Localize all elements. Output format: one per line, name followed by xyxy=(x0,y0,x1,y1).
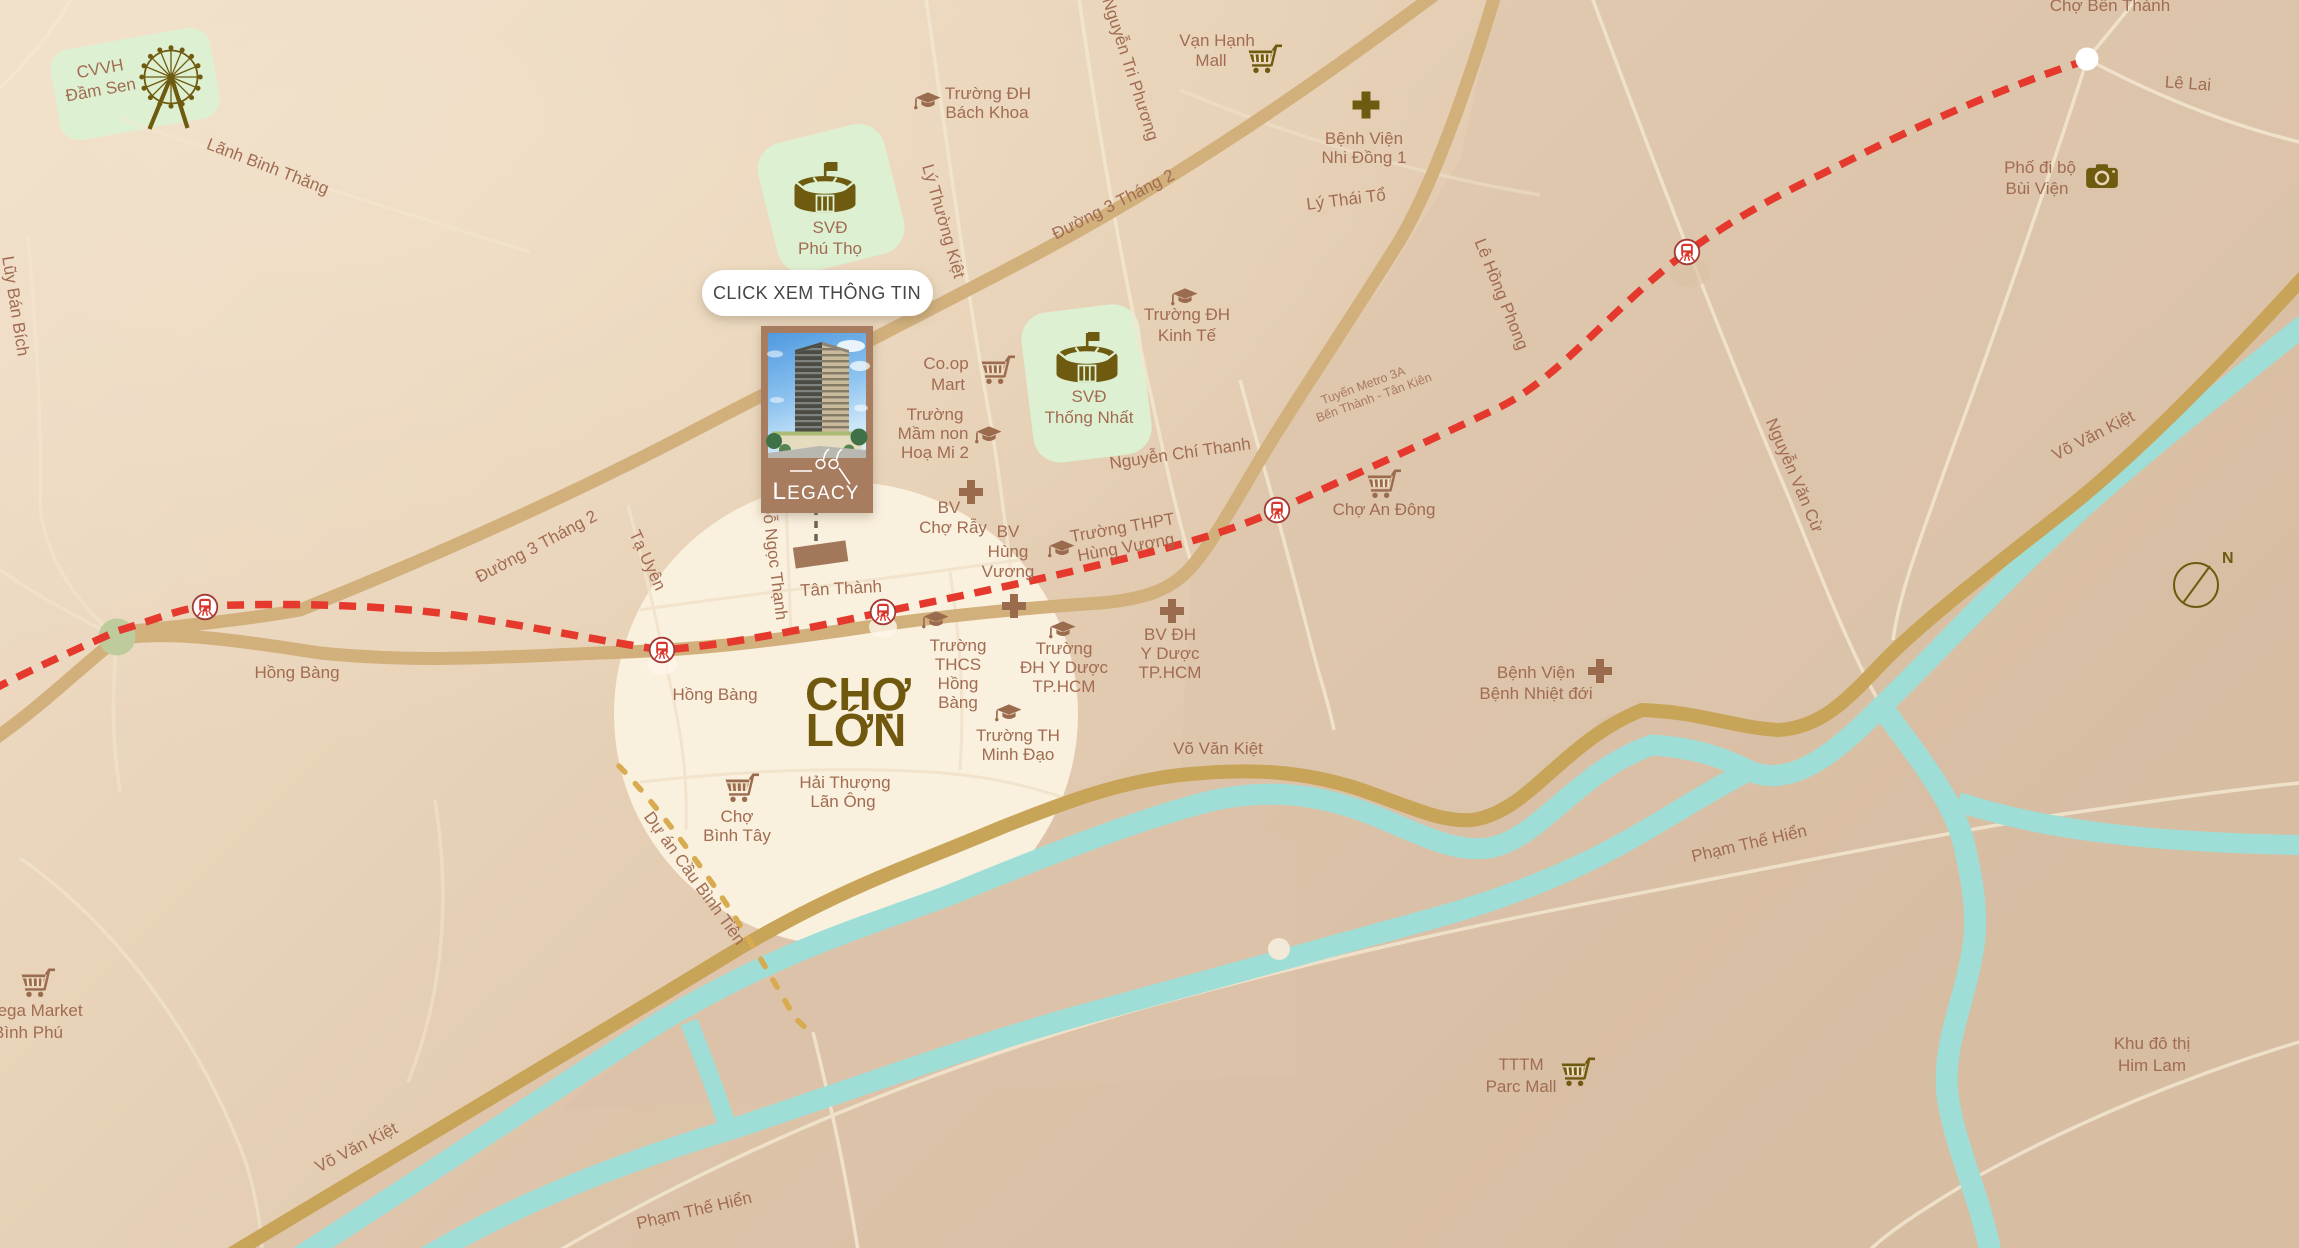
svg-text:Khu đô thị: Khu đô thị xyxy=(2114,1034,2191,1053)
svg-text:LỚN: LỚN xyxy=(806,704,907,756)
svg-text:Nhi Đồng 1: Nhi Đồng 1 xyxy=(1321,148,1406,167)
svg-text:LEGACY: LEGACY xyxy=(772,478,859,505)
svg-text:Chợ: Chợ xyxy=(721,807,754,826)
svg-text:Mầm non: Mầm non xyxy=(898,424,969,443)
svg-text:Kinh Tế: Kinh Tế xyxy=(1158,326,1217,345)
svg-text:BV ĐH: BV ĐH xyxy=(1144,625,1196,644)
svg-text:Trường: Trường xyxy=(930,636,987,655)
svg-text:BV: BV xyxy=(938,498,961,517)
svg-text:SVĐ: SVĐ xyxy=(813,218,848,237)
svg-text:Hồng Bàng: Hồng Bàng xyxy=(254,663,339,682)
svg-text:Hải Thượng: Hải Thượng xyxy=(799,773,890,792)
svg-text:Bình Tây: Bình Tây xyxy=(703,826,771,845)
svg-text:Bệnh Viện: Bệnh Viện xyxy=(1497,663,1575,682)
svg-text:Hồng Bàng: Hồng Bàng xyxy=(672,685,757,704)
svg-text:Him Lam: Him Lam xyxy=(2118,1056,2186,1075)
svg-text:Y Dược: Y Dược xyxy=(1140,644,1200,663)
svg-text:Trường: Trường xyxy=(1036,639,1093,658)
svg-text:Minh Đạo: Minh Đạo xyxy=(982,745,1055,764)
svg-text:Chợ An Đông: Chợ An Đông xyxy=(1333,500,1436,519)
svg-text:CLICK XEM THÔNG TIN: CLICK XEM THÔNG TIN xyxy=(713,282,921,303)
svg-text:Võ Văn Kiệt: Võ Văn Kiệt xyxy=(1173,739,1263,758)
svg-text:Bệnh Nhiệt đới: Bệnh Nhiệt đới xyxy=(1479,684,1592,703)
svg-text:Trường TH: Trường TH xyxy=(976,726,1060,745)
svg-text:Bệnh Viện: Bệnh Viện xyxy=(1325,129,1403,148)
svg-text:TTTM: TTTM xyxy=(1498,1055,1543,1074)
svg-text:SVĐ: SVĐ xyxy=(1072,387,1107,406)
svg-text:Vạn Hạnh: Vạn Hạnh xyxy=(1179,31,1255,50)
svg-text:Chợ Bến Thành: Chợ Bến Thành xyxy=(2050,0,2170,15)
svg-text:ĐH Y Dược: ĐH Y Dược xyxy=(1020,658,1109,677)
svg-text:Bình Phú: Bình Phú xyxy=(0,1023,63,1042)
svg-text:Mega Market: Mega Market xyxy=(0,1001,83,1020)
svg-text:Phú Thọ: Phú Thọ xyxy=(798,239,862,258)
svg-text:Bàng: Bàng xyxy=(938,693,978,712)
svg-text:N: N xyxy=(2222,550,2234,567)
svg-text:Thống Nhất: Thống Nhất xyxy=(1045,408,1134,427)
svg-text:Bùi Viện: Bùi Viện xyxy=(2005,179,2068,198)
svg-text:BV: BV xyxy=(997,522,1020,541)
svg-text:Mall: Mall xyxy=(1195,51,1226,70)
svg-text:Parc Mall: Parc Mall xyxy=(1486,1077,1557,1096)
svg-text:Mart: Mart xyxy=(931,375,965,394)
svg-text:Trường ĐH: Trường ĐH xyxy=(945,84,1031,103)
svg-text:TP.HCM: TP.HCM xyxy=(1033,677,1096,696)
svg-text:Bách Khoa: Bách Khoa xyxy=(945,103,1029,122)
svg-text:Hoạ Mi 2: Hoạ Mi 2 xyxy=(901,443,969,462)
svg-text:Lê Lai: Lê Lai xyxy=(2164,72,2212,94)
svg-text:Trường ĐH: Trường ĐH xyxy=(1144,305,1230,324)
svg-text:Phố đi bộ: Phố đi bộ xyxy=(2004,158,2076,177)
svg-text:Chợ Rẫy: Chợ Rẫy xyxy=(919,518,987,537)
svg-text:Co.op: Co.op xyxy=(923,354,968,373)
svg-text:THCS: THCS xyxy=(935,655,981,674)
svg-text:Hùng: Hùng xyxy=(988,542,1029,561)
svg-text:Hồng: Hồng xyxy=(938,674,979,693)
svg-text:Lãn Ông: Lãn Ông xyxy=(810,792,875,811)
svg-text:Vương: Vương xyxy=(982,562,1035,581)
svg-text:TP.HCM: TP.HCM xyxy=(1139,663,1202,682)
svg-text:Trường: Trường xyxy=(907,405,964,424)
